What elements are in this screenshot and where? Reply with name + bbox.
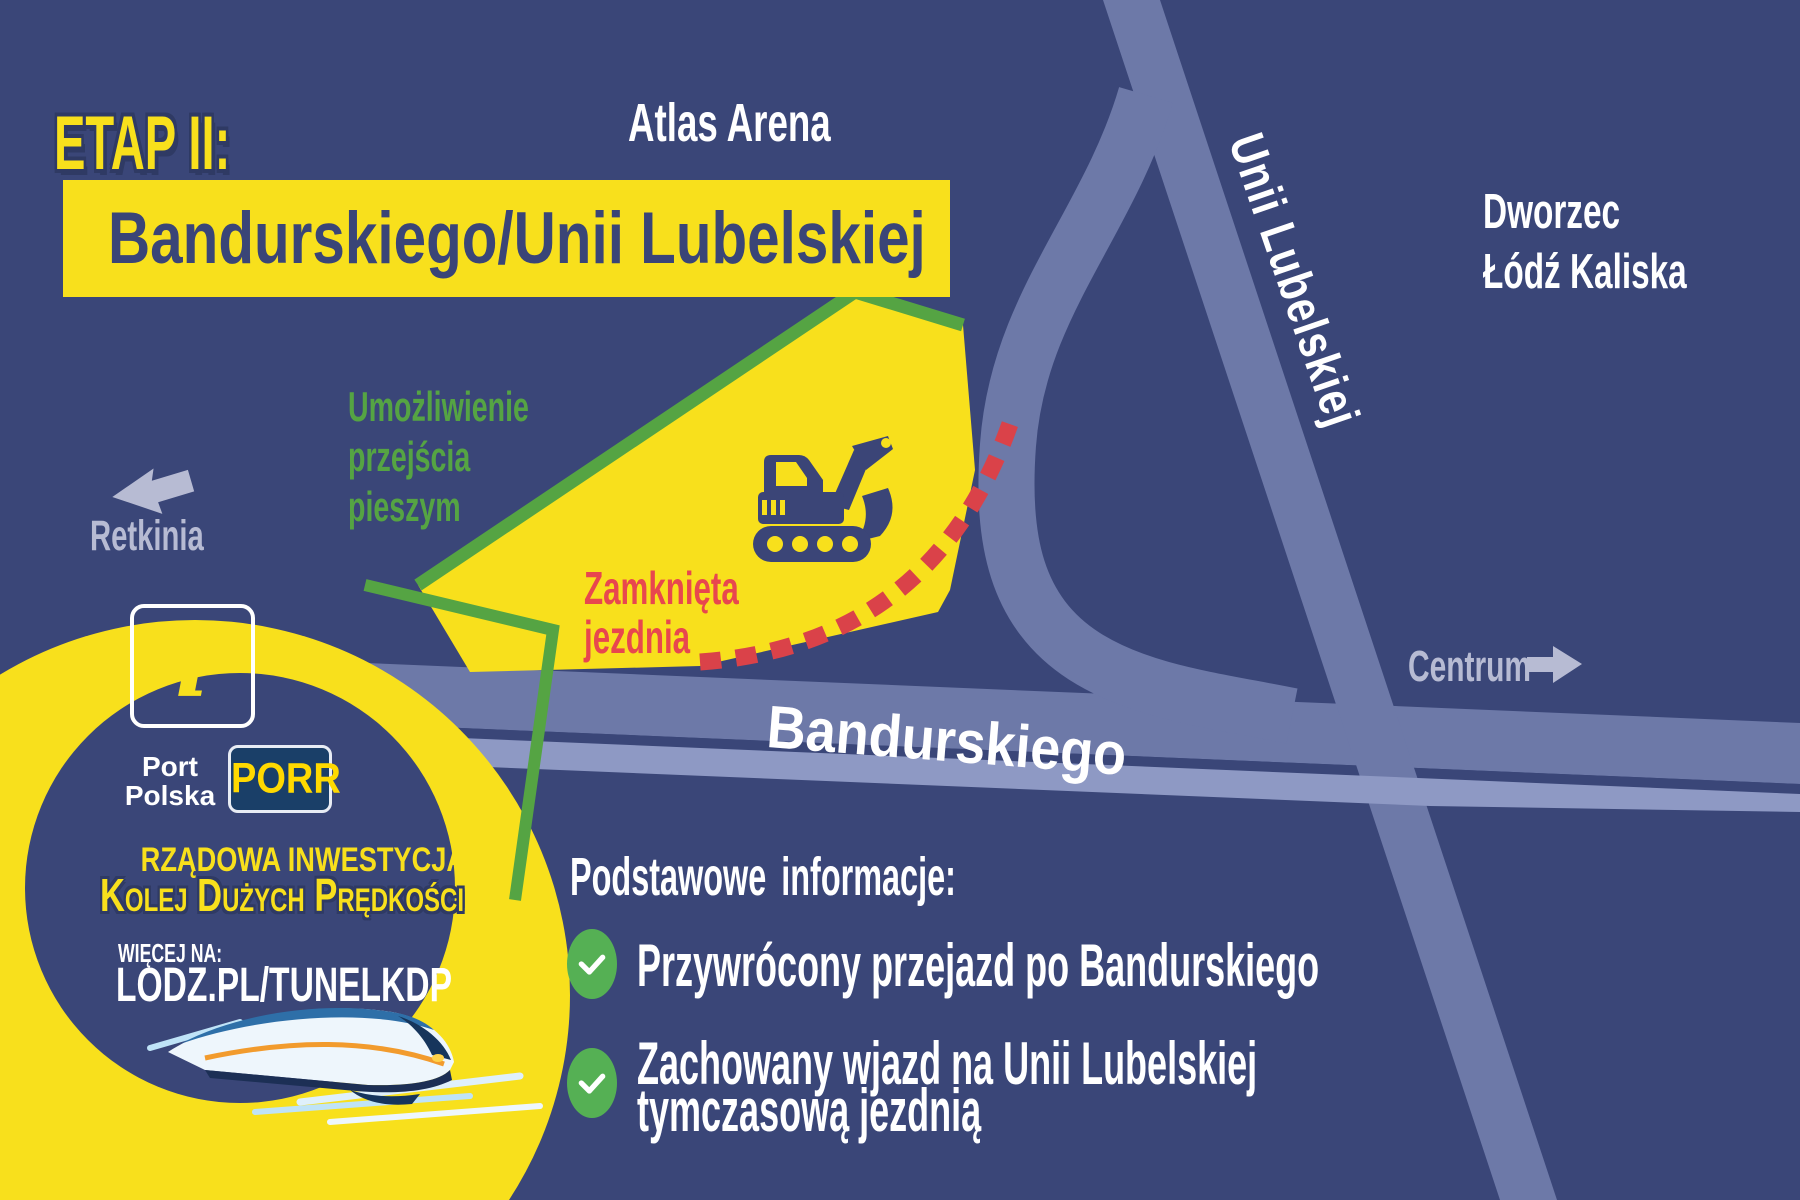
info-item-2: Zachowany wjazd na Unii Lubelskiej tymcz… bbox=[637, 1040, 1671, 1134]
logo-porr: PORR bbox=[228, 745, 332, 813]
info-url-link[interactable]: LODZ.PL/TUNELKDP bbox=[116, 958, 596, 1013]
street-label-bandurskiego: Bandurskiego bbox=[770, 692, 1170, 761]
map-label-centrum: Centrum bbox=[1408, 642, 1589, 692]
pedestrian-access-note: Umożliwienie przejścia pieszym bbox=[348, 382, 614, 532]
infographic-canvas: ETAP II: Bandurskiego/Unii Lubelskiej At… bbox=[0, 0, 1800, 1200]
map-label-retkinia: Retkinia bbox=[90, 512, 257, 561]
check-icon bbox=[567, 1048, 617, 1118]
stage-title-text: ETAP II: bbox=[54, 100, 230, 187]
information-icon: i bbox=[130, 604, 255, 728]
map-label-dworzec-lodz-kaliska: Dworzec Łódź Kaliska bbox=[1483, 182, 1783, 302]
location-banner: Bandurskiego/Unii Lubelskiej bbox=[63, 180, 950, 297]
map-label-atlas-arena: Atlas Arena bbox=[628, 92, 926, 154]
street-label-unii-lubelskiej: Unii Lubelskiej bbox=[1272, 126, 1655, 184]
info-item-1: Przywrócony przejazd po Bandurskiego bbox=[637, 942, 1774, 989]
checkmark-icon bbox=[576, 1067, 608, 1099]
stage-title: ETAP II: bbox=[54, 100, 338, 187]
closed-road-note: Zamknięta jezdnia bbox=[584, 564, 812, 662]
program-label-line2: Kolej Dużych Prędkości bbox=[100, 868, 585, 922]
logo-port-polska: Port Polska bbox=[120, 752, 220, 810]
location-banner-text: Bandurskiego/Unii Lubelskiej bbox=[108, 180, 926, 297]
info-panel-title: Podstawowe informacje: bbox=[570, 846, 1213, 908]
